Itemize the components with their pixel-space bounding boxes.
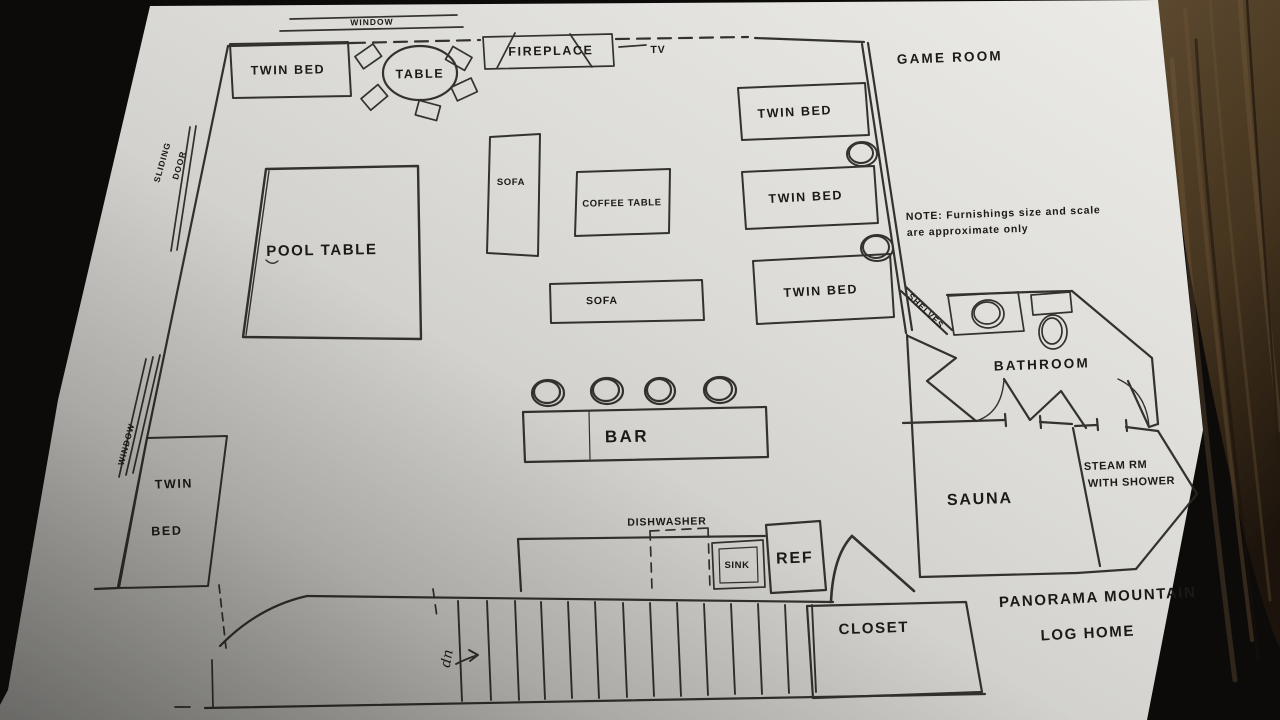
paper-shadow [0,0,1203,720]
floor-plan-photo: WINDOW TWIN BED TABLE FIREPLACE TV GAME … [0,0,1280,720]
